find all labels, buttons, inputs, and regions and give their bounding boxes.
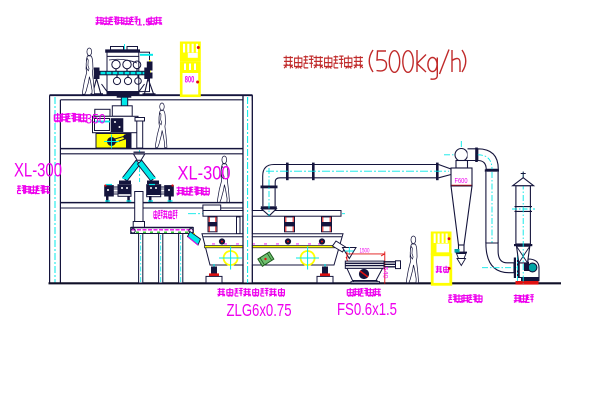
svg-text:XL-300: XL-300 bbox=[178, 164, 231, 185]
svg-text:1500: 1500 bbox=[360, 247, 370, 254]
svg-text:XL-300: XL-300 bbox=[14, 161, 62, 182]
svg-text:F600: F600 bbox=[455, 178, 468, 185]
svg-text:ZLG6x0.75: ZLG6x0.75 bbox=[227, 300, 292, 320]
svg-text:540: 540 bbox=[382, 267, 389, 279]
svg-text:350: 350 bbox=[86, 112, 106, 127]
svg-text:1.5: 1.5 bbox=[137, 16, 152, 28]
svg-text:FS0.6x1.5: FS0.6x1.5 bbox=[337, 299, 397, 319]
svg-text:800: 800 bbox=[185, 75, 195, 85]
